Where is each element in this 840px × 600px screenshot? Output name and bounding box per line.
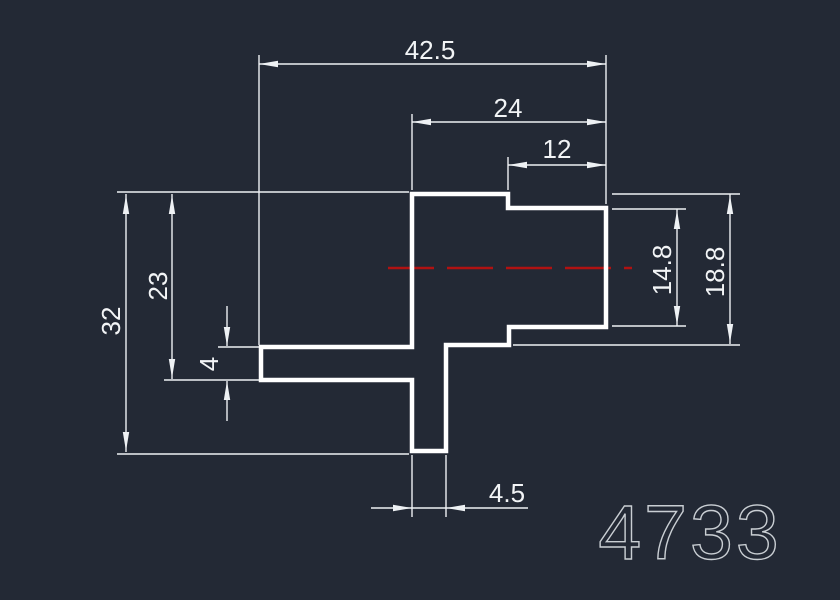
dimension-boss-outer-height: 18.8 <box>700 194 733 344</box>
dim-overall-width-label: 42.5 <box>405 35 456 65</box>
drawing-number: 4733 <box>598 490 781 576</box>
dim-left-height-label: 23 <box>143 272 173 301</box>
dimension-overall-width: 42.5 <box>259 35 606 67</box>
arrowhead-top <box>169 195 175 214</box>
dim-upper-width-label: 24 <box>494 93 523 123</box>
arrowhead-bottom <box>123 432 129 451</box>
arrowhead-left <box>412 119 431 125</box>
arrowhead-left <box>259 61 278 67</box>
dimension-overall-height: 32 <box>96 194 129 452</box>
arrowhead-right <box>393 505 412 511</box>
cad-drawing: 42.5 24 12 32 23 <box>0 0 840 600</box>
dim-flange-thickness-label: 4 <box>194 357 224 371</box>
dimension-boss-inner-height: 14.8 <box>647 209 680 326</box>
arrowhead-right <box>587 119 606 125</box>
dimension-flange-thickness: 4 <box>194 306 230 421</box>
dim-neck-width-label: 12 <box>543 134 572 164</box>
dimension-left-height: 23 <box>143 194 175 379</box>
dim-boss-outer-height-label: 18.8 <box>700 247 730 298</box>
part-outline <box>261 194 606 451</box>
dim-stem-width-label: 4.5 <box>489 478 525 508</box>
dimension-stem-width: 4.5 <box>371 478 528 511</box>
arrowhead-bottom <box>727 324 733 343</box>
arrowhead-bottom <box>674 306 680 325</box>
arrowhead-left <box>508 162 527 168</box>
arrowhead-top <box>727 195 733 214</box>
arrowhead-bottom <box>169 359 175 378</box>
dimension-upper-width: 24 <box>412 93 606 125</box>
arrowhead-right <box>587 61 606 67</box>
arrowhead-top <box>674 210 680 229</box>
arrowhead-top <box>123 195 129 214</box>
arrowhead-up <box>224 381 230 400</box>
cad-drawing-viewport: 42.5 24 12 32 23 <box>0 0 840 600</box>
arrowhead-left <box>446 505 465 511</box>
dim-boss-inner-height-label: 14.8 <box>647 245 677 296</box>
dimension-neck-width: 12 <box>508 134 606 168</box>
arrowhead-down <box>224 327 230 346</box>
dim-overall-height-label: 32 <box>96 307 126 336</box>
arrowhead-right <box>587 162 606 168</box>
